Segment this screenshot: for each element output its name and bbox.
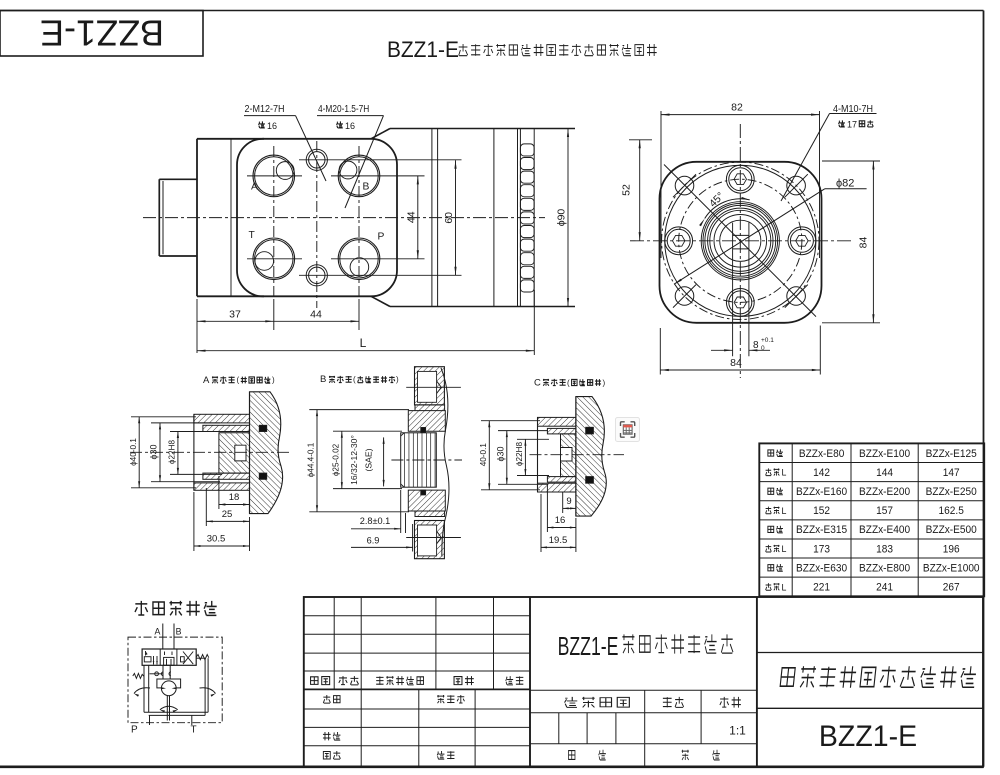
svg-text:17: 17 <box>847 120 857 130</box>
svg-text:B: B <box>363 182 370 193</box>
svg-text:44: 44 <box>310 309 322 321</box>
svg-text:16/32-12-30°: 16/32-12-30° <box>349 435 359 485</box>
svg-text:6.9: 6.9 <box>367 536 380 546</box>
svg-text:P: P <box>131 725 138 736</box>
svg-text:BZZx-E1000: BZZx-E1000 <box>923 562 980 574</box>
svg-text:A: A <box>251 182 258 193</box>
svg-text:9: 9 <box>566 496 571 507</box>
svg-text:147: 147 <box>943 467 960 479</box>
svg-text:16: 16 <box>267 121 277 131</box>
svg-text:+0.1: +0.1 <box>761 337 774 344</box>
svg-text:(SAE): (SAE) <box>364 448 374 471</box>
svg-text:T: T <box>191 725 197 736</box>
svg-text:144: 144 <box>876 467 893 479</box>
svg-text:BZZ1-E: BZZ1-E <box>387 38 459 63</box>
svg-text:2.8±0.1: 2.8±0.1 <box>360 516 391 526</box>
svg-text:173: 173 <box>813 543 830 555</box>
svg-text:162.5: 162.5 <box>939 505 964 517</box>
svg-text:BZZx-E315: BZZx-E315 <box>796 524 847 536</box>
svg-text:BZZx-E250: BZZx-E250 <box>926 486 977 498</box>
svg-text:183: 183 <box>876 543 893 555</box>
svg-text:2-M12-7H: 2-M12-7H <box>245 103 285 114</box>
svg-text:ϕ25-0.02: ϕ25-0.02 <box>331 443 340 476</box>
svg-text:8: 8 <box>753 340 759 351</box>
svg-text:1:1: 1:1 <box>729 724 746 738</box>
svg-text:4-M20-1.5-7H: 4-M20-1.5-7H <box>318 103 369 114</box>
svg-text:BZZ1-E: BZZ1-E <box>558 632 619 661</box>
svg-text:ϕ82: ϕ82 <box>836 178 854 190</box>
svg-text:18: 18 <box>229 492 240 503</box>
svg-text:60: 60 <box>443 212 455 224</box>
svg-text:L: L <box>782 506 787 516</box>
svg-text:P: P <box>378 232 385 243</box>
svg-text:L: L <box>782 544 787 554</box>
svg-text:B: B <box>320 374 326 385</box>
svg-text:L: L <box>782 468 787 478</box>
svg-text:30.5: 30.5 <box>207 534 226 545</box>
svg-text:0: 0 <box>761 345 765 352</box>
svg-text:(: ( <box>567 379 570 388</box>
svg-text:157: 157 <box>876 505 893 517</box>
svg-text:ϕ22H8: ϕ22H8 <box>515 441 524 466</box>
svg-text:L: L <box>782 582 787 592</box>
svg-text:52: 52 <box>621 184 633 196</box>
svg-text:25: 25 <box>222 509 233 520</box>
svg-text:ϕ90: ϕ90 <box>556 209 568 227</box>
svg-text:): ) <box>603 379 606 388</box>
svg-text:221: 221 <box>813 581 830 593</box>
svg-text:BZZx-E800: BZZx-E800 <box>859 562 910 574</box>
svg-text:): ) <box>396 375 399 384</box>
svg-text:84: 84 <box>858 237 870 249</box>
svg-text:A: A <box>155 627 161 637</box>
svg-text:B: B <box>176 627 182 637</box>
svg-text:196: 196 <box>943 543 960 555</box>
svg-text:BZZx-E500: BZZx-E500 <box>926 524 977 536</box>
svg-text:BZZ1-E: BZZ1-E <box>40 12 164 53</box>
svg-text:ϕ30: ϕ30 <box>496 446 506 461</box>
svg-text:A: A <box>203 375 210 386</box>
svg-text:BZZx-E80: BZZx-E80 <box>799 447 845 459</box>
svg-text:84: 84 <box>730 357 742 369</box>
svg-text:C: C <box>534 378 541 389</box>
svg-text:ϕ22H8: ϕ22H8 <box>168 439 177 464</box>
svg-text:4-M10-7H: 4-M10-7H <box>833 103 873 114</box>
svg-text:(: ( <box>237 376 240 385</box>
svg-text:142: 142 <box>813 467 830 479</box>
svg-text:(: ( <box>353 375 356 384</box>
svg-text:16: 16 <box>555 515 566 526</box>
svg-text:BZZx-E200: BZZx-E200 <box>859 486 910 498</box>
svg-text:BZZx-E160: BZZx-E160 <box>796 486 847 498</box>
svg-text:82: 82 <box>731 102 743 114</box>
svg-text:ϕ44.4-0.1: ϕ44.4-0.1 <box>307 442 316 477</box>
svg-text:267: 267 <box>943 581 960 593</box>
svg-text:19.5: 19.5 <box>549 535 568 546</box>
svg-text:40-0.1: 40-0.1 <box>479 443 488 467</box>
svg-text:L: L <box>360 336 367 350</box>
svg-text:BZZx-E125: BZZx-E125 <box>926 447 977 459</box>
svg-text:): ) <box>272 376 275 385</box>
svg-text:ϕ40-0.1: ϕ40-0.1 <box>129 438 138 466</box>
svg-text:BZZx-E400: BZZx-E400 <box>859 524 910 536</box>
svg-text:152: 152 <box>813 505 830 517</box>
svg-text:T: T <box>249 230 256 241</box>
svg-text:37: 37 <box>229 309 241 321</box>
svg-text:ϕ30: ϕ30 <box>149 444 159 459</box>
svg-text:BZZx-E630: BZZx-E630 <box>796 562 847 574</box>
svg-text:16: 16 <box>345 121 355 131</box>
svg-text:44: 44 <box>406 211 418 223</box>
svg-text:241: 241 <box>876 581 893 593</box>
svg-text:BZZx-E100: BZZx-E100 <box>859 447 910 459</box>
svg-text:BZZ1-E: BZZ1-E <box>819 720 917 753</box>
